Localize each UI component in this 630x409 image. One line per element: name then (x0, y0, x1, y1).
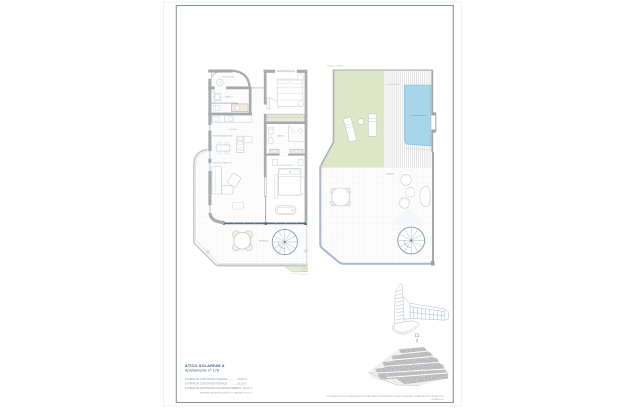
svg-text:PLANTA SOLARIUM: PLANTA SOLARIUM (327, 64, 343, 67)
svg-text:Apartamento nº 178: Apartamento nº 178 (185, 368, 219, 373)
svg-text:BAÑO 2: BAÑO 2 (225, 95, 233, 98)
svg-text:DORMITORIO 2: DORMITORIO 2 (278, 165, 294, 167)
svg-text:SALÓN-COMEDOR: SALÓN-COMEDOR (213, 162, 232, 165)
svg-text:BAÑO 1: BAÑO 1 (277, 134, 285, 137)
svg-text:EL PRESENTE PLANO PODRÁ SUFRIR: EL PRESENTE PLANO PODRÁ SUFRIR MODIFICAC… (327, 395, 444, 398)
svg-text:SUPERFICIE CONSTRUIDA TERRAZA: SUPERFICIE CONSTRUIDA TERRAZA . . . ....… (185, 383, 247, 386)
svg-text:SUPERFICIE CONSTRUIDA VIVIENDA: SUPERFICIE CONSTRUIDA VIVIENDA .........… (185, 378, 248, 381)
svg-text:ÁTICO SOLARIUM A: ÁTICO SOLARIUM A (185, 363, 225, 368)
svg-text:SUPERFICIE REPERCUSIÓN Z.COMUN: SUPERFICIE REPERCUSIÓN Z.COMUNES 18.64 m… (200, 392, 252, 395)
svg-text:COCINA: COCINA (228, 128, 237, 131)
svg-text:TERRAZA: TERRAZA (259, 239, 269, 242)
svg-text:SUPERFICIE CONSTRUIDA SOLARIUM: SUPERFICIE CONSTRUIDA SOLARIUM/CUBIERTA … (185, 387, 253, 390)
svg-text:RECIBIDOR: RECIBIDOR (223, 76, 235, 78)
svg-text:ESCALA 1:100: ESCALA 1:100 (432, 398, 444, 401)
svg-text:TARIMA: TARIMA (387, 173, 395, 176)
